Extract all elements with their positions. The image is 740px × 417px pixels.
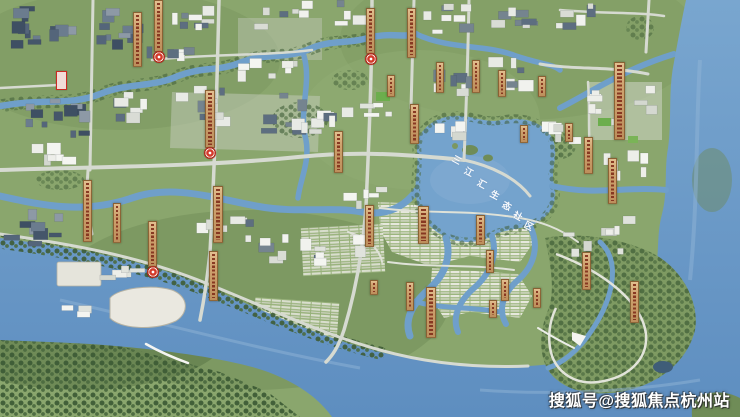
aerial-masterplan-image: 三江汇生态社区 搜狐号@搜狐焦点杭州站 — [0, 0, 740, 417]
map-terrain — [0, 0, 740, 417]
central-lake — [416, 116, 556, 242]
